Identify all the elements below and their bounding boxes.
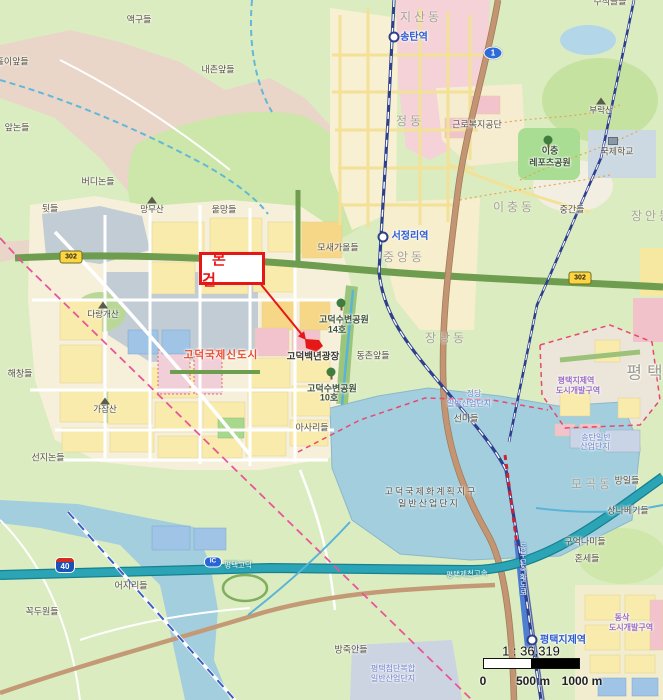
label-overlay: 액구들쇠훌이앞들내촌앞들앞논들수직골들지산동송탄역정동근로복지공단부락산이충레포…	[0, 0, 663, 700]
map-label: 모새가올들	[317, 244, 358, 253]
route-shield-40: 40	[55, 557, 75, 573]
mountain-icon	[100, 398, 110, 405]
map-label: 국제학교	[600, 148, 633, 157]
map-label: 구억나미들	[564, 538, 605, 547]
scale-tick-0: 0	[480, 674, 487, 688]
map-label: 버디논들	[81, 178, 114, 187]
map-label: 10호	[320, 394, 338, 403]
map-label: 방일들	[615, 477, 640, 486]
map-label: 정동	[396, 115, 424, 127]
map-label: 일반산업단지	[447, 400, 491, 408]
tree-icon	[337, 299, 346, 308]
route-shield-IC: IC	[204, 557, 222, 568]
map-label: 근로복지공단	[452, 121, 502, 130]
map-label: 중앙동	[383, 251, 425, 263]
station-marker-icon	[378, 232, 389, 243]
scale-bar	[483, 658, 580, 669]
mountain-icon	[596, 98, 606, 105]
scale-tick-1000: 1000 m	[562, 674, 603, 688]
map-label: 평택제천고속	[446, 569, 488, 579]
expressway-shield-number: 40	[56, 562, 74, 572]
map-label: 모곡동	[571, 478, 613, 490]
map-label: 평택고덕	[224, 561, 252, 569]
route-shield-302: 302	[569, 272, 592, 285]
map-label: 아사리들	[295, 424, 328, 433]
tree-icon	[544, 136, 553, 145]
scale-tick-500: 500 m	[516, 674, 550, 688]
map-label: 장안동	[631, 210, 663, 222]
map-label: 부락산	[589, 106, 612, 115]
mountain-icon	[98, 302, 108, 309]
map-label: 송탄일반	[581, 434, 610, 442]
map-label: 방죽안들	[334, 646, 367, 655]
map-label: 평택	[626, 365, 663, 382]
map-label: 정당	[467, 390, 482, 398]
subject-property-box: 본 건	[199, 252, 265, 285]
map-label: 수직골들	[593, 0, 626, 7]
map-label: 해창들	[8, 370, 33, 379]
tree-icon	[327, 368, 336, 377]
map-label: 도시개발구역	[556, 387, 600, 395]
map-label: 상나베기들	[607, 507, 648, 516]
scale-bar-white-segment	[484, 659, 531, 668]
school-icon	[608, 137, 618, 145]
map-label: 쇠훌이앞들	[0, 58, 29, 67]
map-label: 지산동	[400, 11, 442, 23]
map-label: 고덕국제신도시	[184, 350, 259, 361]
map-label: 선지논들	[31, 454, 64, 463]
map-label: 산업단지	[580, 443, 609, 451]
map-label: 평택지제역	[558, 377, 595, 385]
map-label: 장당동	[425, 332, 467, 344]
map-label: 앞논들	[5, 124, 30, 133]
map-label: 혼세들	[575, 555, 600, 564]
map-viewport[interactable]: 액구들쇠훌이앞들내촌앞들앞논들수직골들지산동송탄역정동근로복지공단부락산이충레포…	[0, 0, 663, 700]
map-label: 뒷들	[42, 205, 59, 214]
map-label: 레포츠공원	[529, 159, 570, 168]
map-label: 동촌앞들	[356, 352, 389, 361]
route-shield-1: 1	[484, 47, 503, 60]
map-label: 내촌앞들	[201, 66, 234, 75]
map-label: 울망들	[212, 206, 237, 215]
map-label: 송탄역	[400, 33, 428, 43]
scale-ratio-text: 1 : 36,319	[502, 644, 560, 659]
route-shield-302: 302	[60, 251, 83, 264]
map-label: 일반산업단지	[371, 675, 415, 683]
map-label: 선미들	[454, 415, 479, 424]
map-label: 서정리역	[392, 232, 429, 242]
map-label: 다랑개산	[87, 310, 118, 319]
map-label: 이충동	[493, 201, 535, 213]
map-label: 망무산	[140, 205, 163, 214]
map-label: 중간들	[560, 206, 585, 215]
mountain-icon	[147, 197, 157, 204]
map-label: 이충	[542, 147, 559, 156]
map-label: 고덕백년광장	[287, 352, 339, 362]
map-label: 어지리들	[114, 582, 147, 591]
map-label: 꼭두원들	[25, 608, 58, 617]
map-label: 도시개발구역	[609, 624, 653, 632]
map-label: 동부고속화도로	[519, 543, 527, 596]
map-label: 고덕수변공원	[319, 316, 369, 325]
map-label: 가잠산	[93, 405, 116, 414]
map-label: 평택첨단복합	[371, 665, 415, 673]
map-label: 동삭	[615, 614, 630, 622]
map-label: 액구들	[127, 16, 152, 25]
scale-bar-black-segment	[531, 659, 579, 668]
station-marker-icon	[389, 32, 400, 43]
map-label: 14호	[328, 326, 346, 335]
map-label: 고덕국제화계획지구	[385, 488, 478, 497]
map-label: 일반산업단지	[398, 500, 460, 509]
